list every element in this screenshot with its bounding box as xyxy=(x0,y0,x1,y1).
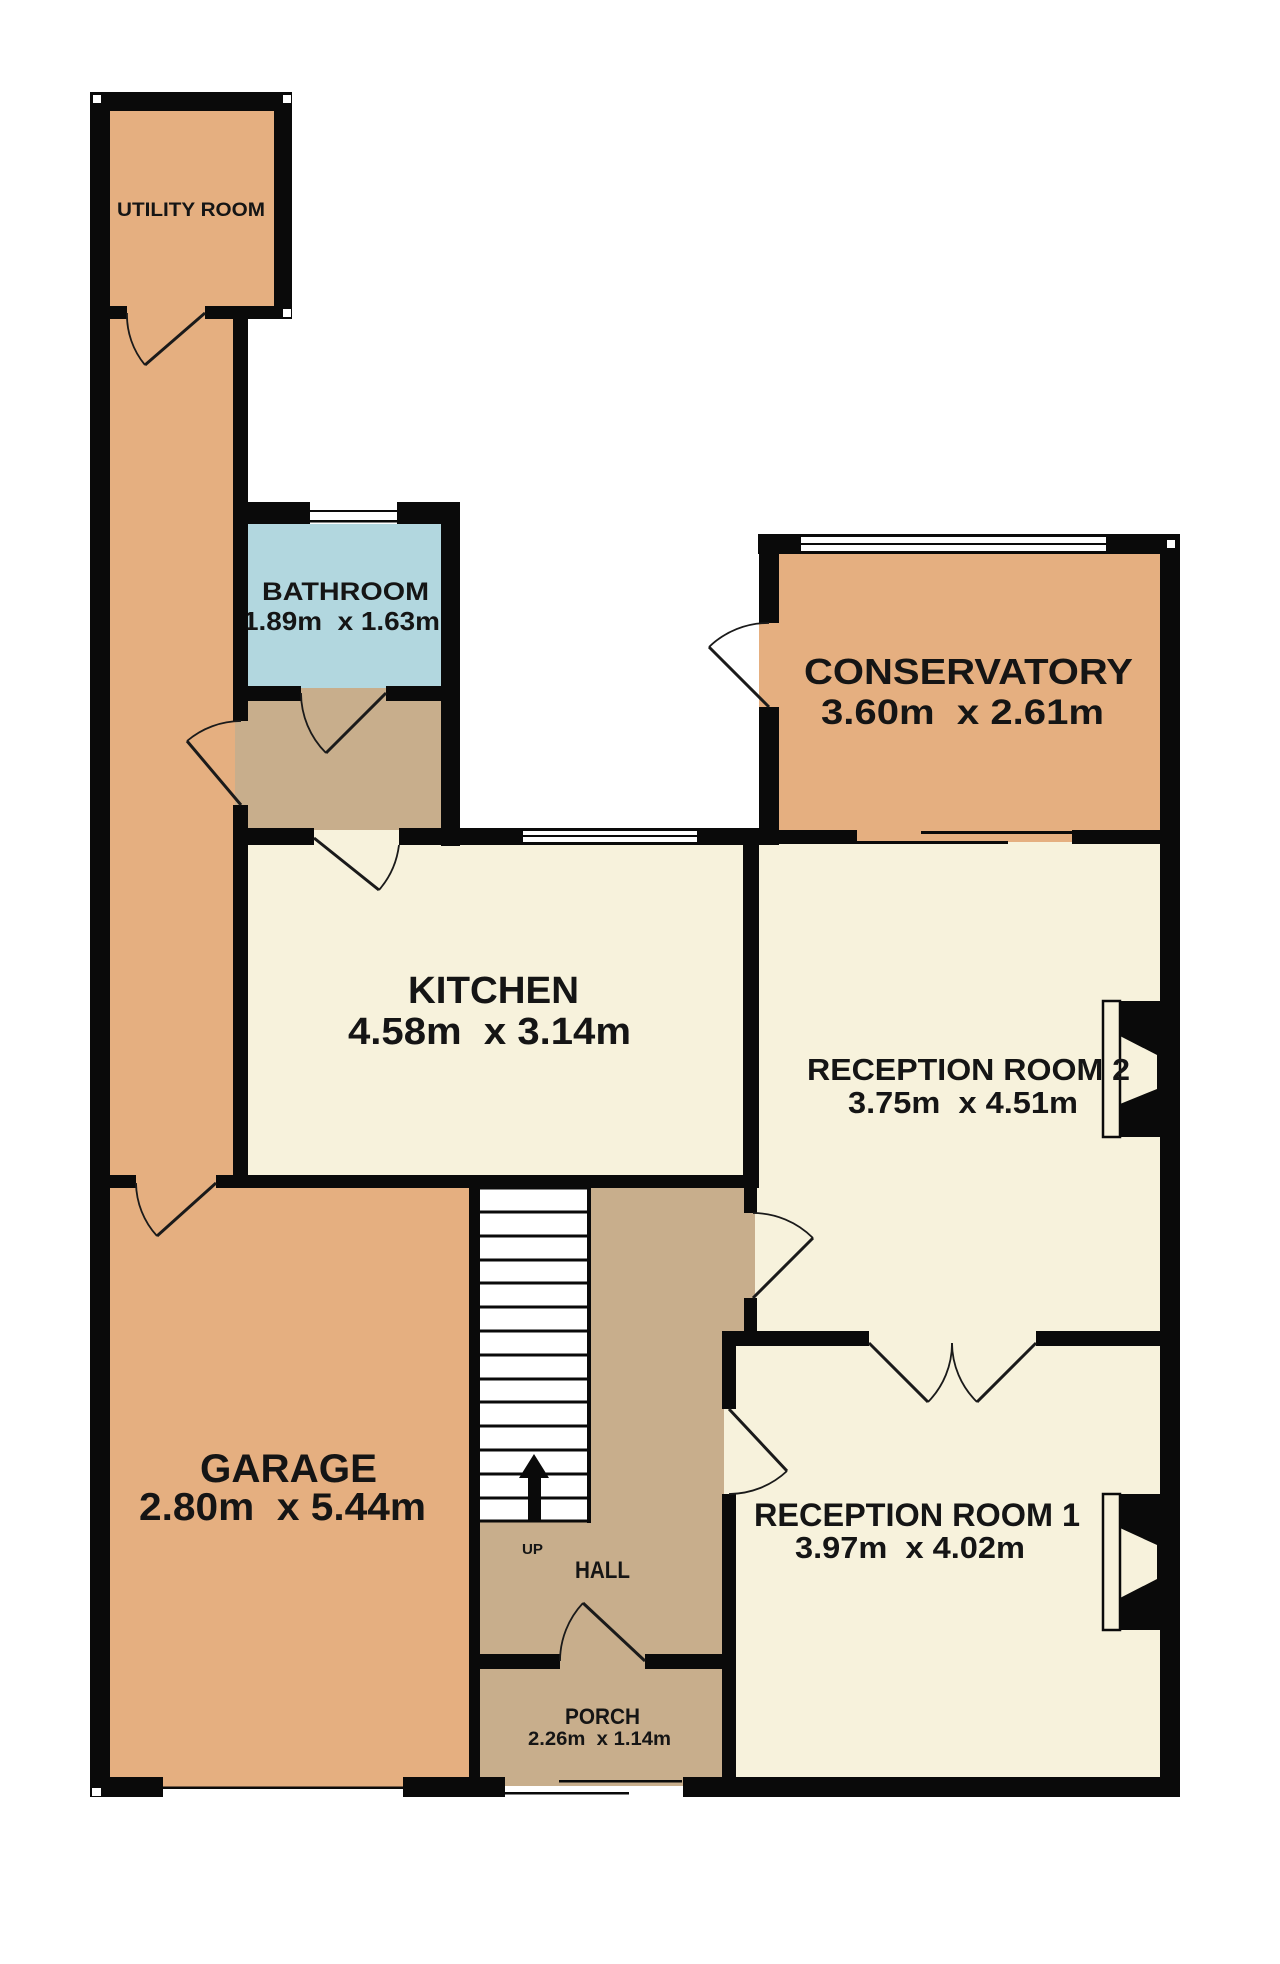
svg-text:UP: UP xyxy=(522,1541,543,1558)
svg-text:4.58m x 3.14m: 4.58m x 3.14m xyxy=(348,1011,631,1053)
svg-text:3.75m x 4.51m: 3.75m x 4.51m xyxy=(848,1085,1078,1120)
svg-text:2.26m x 1.14m: 2.26m x 1.14m xyxy=(528,1729,671,1750)
svg-text:KITCHEN: KITCHEN xyxy=(408,970,579,1012)
svg-text:CONSERVATORY: CONSERVATORY xyxy=(804,651,1133,692)
svg-text:PORCH: PORCH xyxy=(565,1704,640,1729)
svg-text:RECEPTION ROOM 1: RECEPTION ROOM 1 xyxy=(754,1497,1080,1533)
svg-text:2.80m x 5.44m: 2.80m x 5.44m xyxy=(139,1486,426,1529)
svg-text:HALL: HALL xyxy=(575,1557,630,1584)
svg-text:UTILITY ROOM: UTILITY ROOM xyxy=(117,199,265,221)
svg-text:GARAGE: GARAGE xyxy=(200,1447,377,1491)
svg-text:RECEPTION ROOM 2: RECEPTION ROOM 2 xyxy=(807,1052,1130,1087)
svg-text:BATHROOM: BATHROOM xyxy=(262,578,429,606)
svg-text:3.97m x 4.02m: 3.97m x 4.02m xyxy=(795,1530,1025,1565)
svg-text:3.60m x 2.61m: 3.60m x 2.61m xyxy=(821,693,1104,732)
svg-text:1.89m x 1.63m: 1.89m x 1.63m xyxy=(243,606,440,636)
